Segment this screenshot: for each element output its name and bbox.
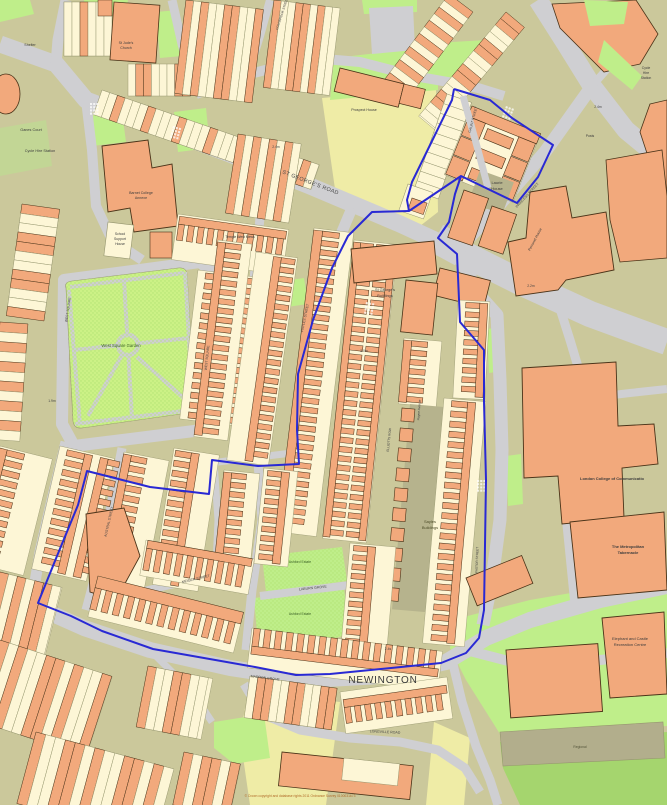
svg-text:2.4m: 2.4m bbox=[272, 145, 280, 149]
svg-text:House: House bbox=[491, 186, 503, 191]
svg-text:Support: Support bbox=[114, 237, 126, 241]
svg-text:Ashford Estate: Ashford Estate bbox=[289, 560, 311, 564]
svg-text:Laurie: Laurie bbox=[491, 180, 503, 185]
svg-text:Hire: Hire bbox=[643, 71, 649, 75]
svg-text:Church: Church bbox=[120, 46, 132, 50]
svg-text:© Crown copyright and database: © Crown copyright and database rights 20… bbox=[245, 794, 356, 798]
svg-text:West Square Garden: West Square Garden bbox=[101, 343, 141, 348]
svg-text:NEWINGTON: NEWINGTON bbox=[348, 675, 417, 686]
svg-text:London College of Communicatio: London College of Communicatio bbox=[580, 476, 645, 481]
svg-text:2.4m: 2.4m bbox=[594, 105, 602, 109]
svg-text:House: House bbox=[115, 242, 125, 246]
svg-text:3.0m: 3.0m bbox=[360, 349, 368, 353]
svg-text:Elephant and Castle: Elephant and Castle bbox=[612, 636, 649, 641]
svg-text:Regional: Regional bbox=[573, 745, 587, 749]
svg-text:2.4s: 2.4s bbox=[385, 647, 392, 651]
svg-text:St George's: St George's bbox=[375, 288, 395, 292]
svg-text:Cycle Hire Station: Cycle Hire Station bbox=[25, 149, 55, 153]
svg-text:Recreation Centre: Recreation Centre bbox=[614, 642, 647, 647]
svg-text:Prospect House: Prospect House bbox=[351, 108, 377, 112]
svg-text:Buildings: Buildings bbox=[377, 294, 393, 298]
svg-text:Temple West Mews: Temple West Mews bbox=[225, 235, 255, 239]
svg-text:Cycle: Cycle bbox=[642, 66, 651, 70]
svg-text:Buildings: Buildings bbox=[422, 525, 438, 530]
svg-text:Ashford Estate: Ashford Estate bbox=[289, 612, 311, 616]
svg-text:Ganes Court: Ganes Court bbox=[20, 128, 42, 132]
svg-text:Shelter: Shelter bbox=[24, 43, 36, 47]
svg-text:Posts: Posts bbox=[586, 134, 595, 138]
svg-text:Station: Station bbox=[641, 76, 652, 80]
svg-text:Barnet College: Barnet College bbox=[129, 191, 153, 195]
svg-text:Tabernacle: Tabernacle bbox=[618, 550, 640, 555]
svg-text:St Jude's: St Jude's bbox=[119, 41, 134, 45]
svg-text:The Metropolitan: The Metropolitan bbox=[612, 544, 645, 549]
svg-text:1.9m: 1.9m bbox=[48, 399, 56, 403]
svg-text:Annexe: Annexe bbox=[135, 196, 147, 200]
svg-text:School: School bbox=[115, 232, 126, 236]
svg-text:2.2m: 2.2m bbox=[527, 284, 535, 288]
svg-text:Sayles: Sayles bbox=[424, 519, 436, 524]
